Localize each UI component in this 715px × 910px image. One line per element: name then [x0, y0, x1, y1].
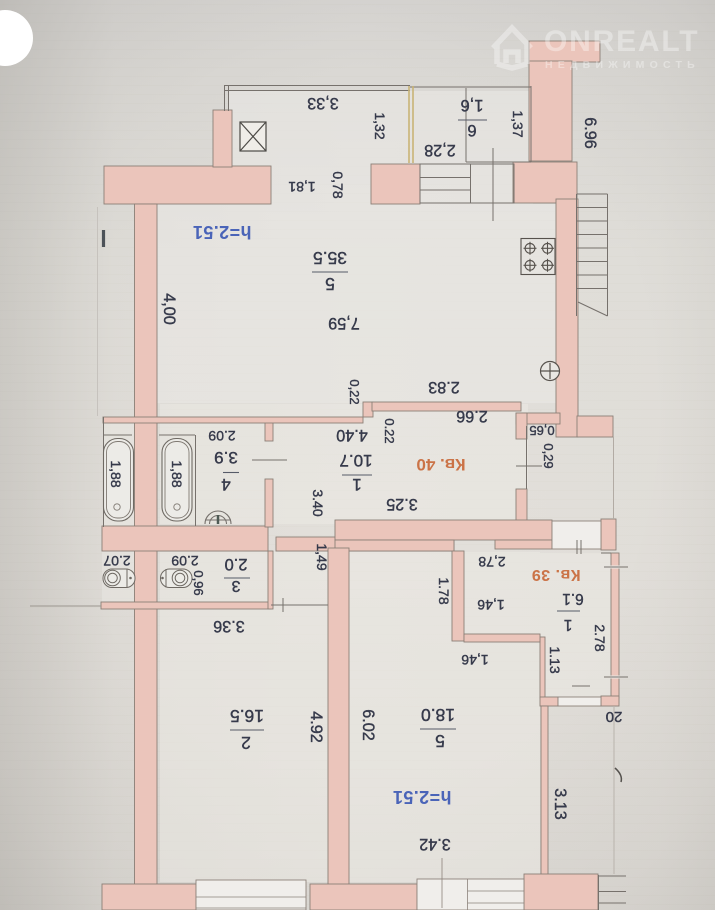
svg-text:2.83: 2.83: [428, 378, 460, 396]
svg-text:1,88: 1,88: [108, 460, 124, 487]
svg-text:6.96: 6.96: [581, 117, 599, 149]
svg-text:Кв. 39: Кв. 39: [531, 566, 580, 583]
svg-text:16.5: 16.5: [230, 706, 264, 726]
svg-text:2.0: 2.0: [225, 555, 248, 573]
svg-text:10.7: 10.7: [339, 451, 372, 470]
svg-text:3.36: 3.36: [213, 617, 245, 635]
svg-text:1,81: 1,81: [288, 179, 315, 195]
svg-text:1.78: 1.78: [436, 577, 452, 604]
svg-text:0,96: 0,96: [191, 570, 206, 595]
svg-text:2.09: 2.09: [208, 428, 235, 444]
svg-text:6.02: 6.02: [359, 709, 377, 741]
svg-text:0,65: 0,65: [529, 423, 554, 438]
svg-text:1,6: 1,6: [461, 96, 484, 114]
svg-text:4.92: 4.92: [307, 711, 325, 743]
svg-text:1,49: 1,49: [314, 543, 330, 570]
svg-text:6: 6: [467, 121, 476, 139]
svg-text:2.09: 2.09: [171, 553, 198, 569]
svg-text:5: 5: [325, 274, 335, 294]
svg-text:1.13: 1.13: [547, 646, 563, 673]
svg-text:0,22: 0,22: [347, 379, 362, 404]
svg-text:1,37: 1,37: [510, 110, 526, 137]
svg-text:1,88: 1,88: [169, 460, 185, 487]
svg-text:2,28: 2,28: [424, 141, 456, 159]
svg-text:4,00: 4,00: [160, 293, 178, 325]
svg-text:0,78: 0,78: [330, 171, 346, 198]
svg-text:2.78: 2.78: [592, 624, 608, 651]
svg-text:5: 5: [435, 731, 445, 751]
svg-text:2.66: 2.66: [456, 407, 488, 425]
svg-text:h=2.51: h=2.51: [193, 222, 252, 242]
svg-text:2,78: 2,78: [478, 554, 505, 570]
svg-text:1,46: 1,46: [461, 652, 488, 668]
svg-text:НЕДВИЖИМОСТЬ: НЕДВИЖИМОСТЬ: [545, 59, 700, 71]
svg-text:20: 20: [606, 708, 623, 725]
svg-text:1,46: 1,46: [477, 597, 504, 613]
svg-text:1,32: 1,32: [372, 112, 388, 139]
svg-text:3.9: 3.9: [214, 448, 238, 467]
svg-text:2.07: 2.07: [103, 553, 130, 569]
svg-text:1: 1: [352, 475, 361, 494]
svg-text:18.0: 18.0: [421, 705, 455, 725]
svg-text:4.40: 4.40: [336, 426, 368, 444]
svg-text:1: 1: [564, 616, 573, 633]
svg-text:7,59: 7,59: [328, 314, 360, 332]
svg-text:0,29: 0,29: [541, 443, 556, 468]
svg-text:Кв. 40: Кв. 40: [416, 455, 465, 474]
svg-text:3: 3: [231, 577, 240, 594]
svg-text:4: 4: [221, 475, 230, 494]
svg-text:3,33: 3,33: [307, 94, 339, 112]
svg-text:3.42: 3.42: [419, 835, 451, 853]
svg-text:3.25: 3.25: [386, 495, 418, 513]
svg-text:35.5: 35.5: [313, 248, 347, 268]
svg-text:ONREALT: ONREALT: [544, 25, 699, 58]
svg-text:0.22: 0.22: [382, 418, 397, 443]
svg-text:h=2.51: h=2.51: [393, 787, 452, 807]
svg-text:3.13: 3.13: [551, 788, 569, 820]
svg-text:2: 2: [241, 733, 251, 753]
svg-text:6.1: 6.1: [562, 590, 584, 607]
svg-text:3.40: 3.40: [310, 489, 326, 516]
